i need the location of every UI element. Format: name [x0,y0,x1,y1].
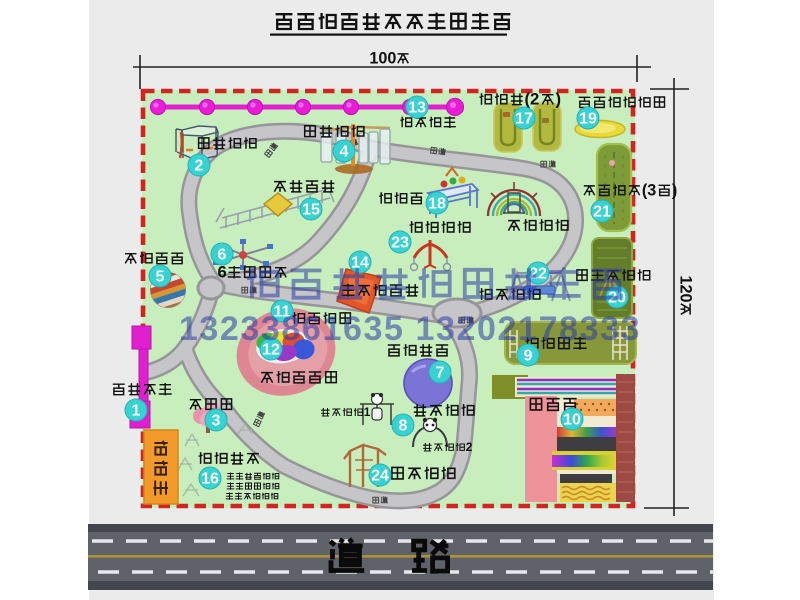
svg-text:100: 100 [369,49,396,67]
svg-text:15: 15 [302,202,320,219]
svg-text:24: 24 [371,468,389,485]
svg-text:120: 120 [677,276,695,303]
svg-text:21: 21 [593,204,611,221]
svg-text:8: 8 [399,418,408,435]
svg-text:9: 9 [524,348,533,365]
svg-text:7: 7 [436,365,445,382]
svg-text:1: 1 [364,405,371,419]
svg-text:1: 1 [132,403,141,420]
svg-text:(3: (3 [642,181,656,199]
svg-text:): ) [556,90,562,109]
svg-text:22: 22 [529,266,547,283]
svg-text:19: 19 [579,111,597,128]
svg-text:6: 6 [218,247,227,264]
svg-text:17: 17 [515,111,533,128]
svg-text:13233861635 13202178333: 13233861635 13202178333 [179,310,641,348]
svg-text:4: 4 [340,144,349,161]
svg-text:): ) [672,181,677,199]
svg-text:(2: (2 [525,90,540,109]
svg-text:16: 16 [201,471,219,488]
svg-text:13: 13 [408,100,426,117]
svg-text:10: 10 [563,412,581,429]
svg-text:18: 18 [428,196,446,213]
svg-text:5: 5 [156,269,165,286]
svg-text:2: 2 [466,440,473,454]
svg-text:3: 3 [212,413,221,430]
svg-text:2: 2 [195,158,204,175]
svg-text:14: 14 [351,255,369,272]
svg-text:23: 23 [391,235,409,252]
